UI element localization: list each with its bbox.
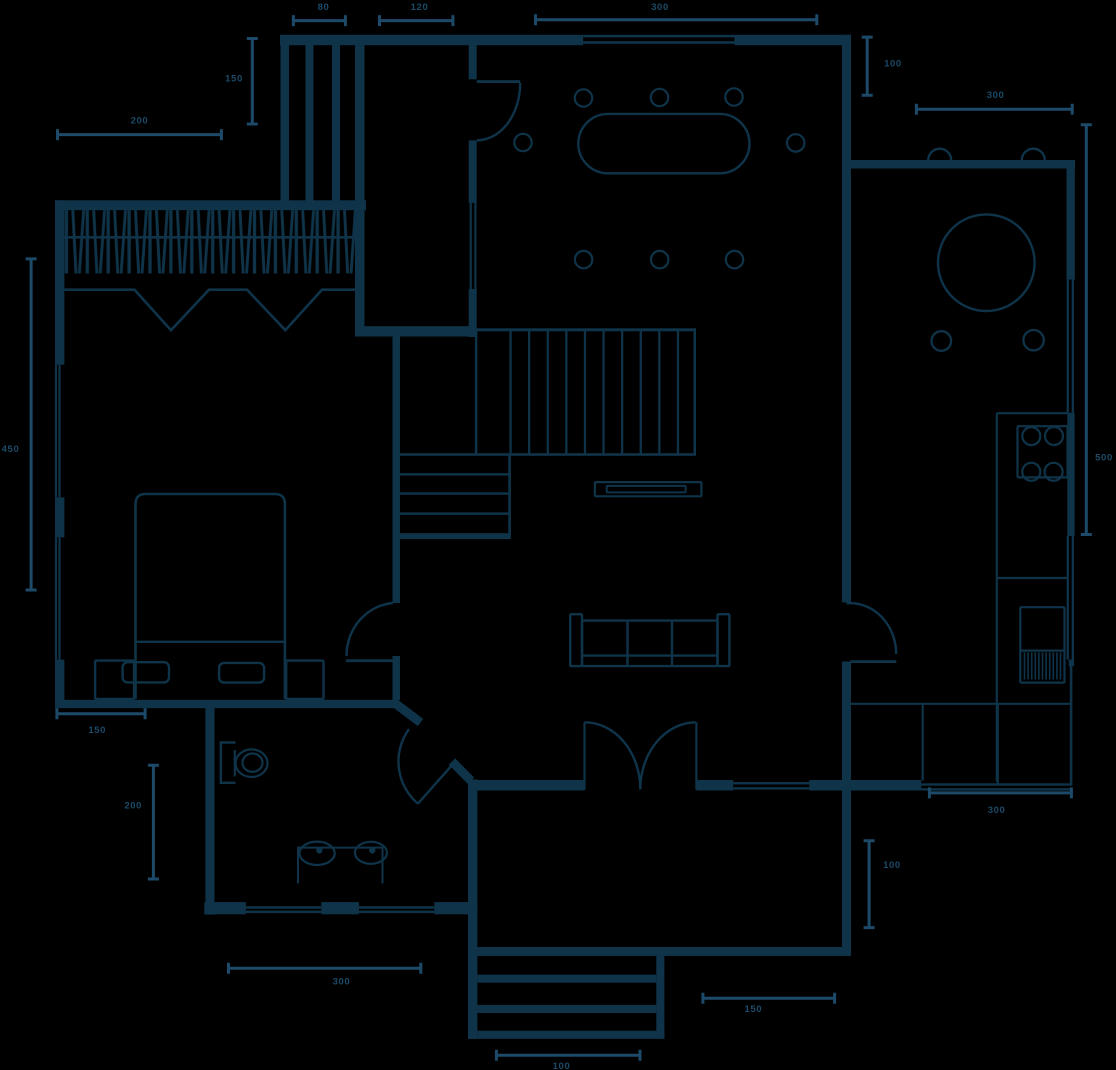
svg-text:300: 300 <box>987 90 1005 101</box>
svg-text:150: 150 <box>88 725 106 736</box>
svg-text:100: 100 <box>884 59 902 70</box>
svg-text:450: 450 <box>2 444 20 455</box>
svg-text:120: 120 <box>411 2 429 13</box>
svg-text:200: 200 <box>131 116 149 127</box>
svg-text:80: 80 <box>318 2 330 13</box>
svg-text:300: 300 <box>333 976 351 987</box>
svg-text:200: 200 <box>124 801 142 812</box>
svg-text:100: 100 <box>883 860 901 871</box>
svg-text:300: 300 <box>988 805 1006 816</box>
svg-text:300: 300 <box>651 2 669 13</box>
svg-text:500: 500 <box>1095 453 1113 464</box>
svg-text:150: 150 <box>744 1004 762 1015</box>
svg-text:150: 150 <box>225 74 243 85</box>
svg-text:100: 100 <box>553 1061 571 1070</box>
